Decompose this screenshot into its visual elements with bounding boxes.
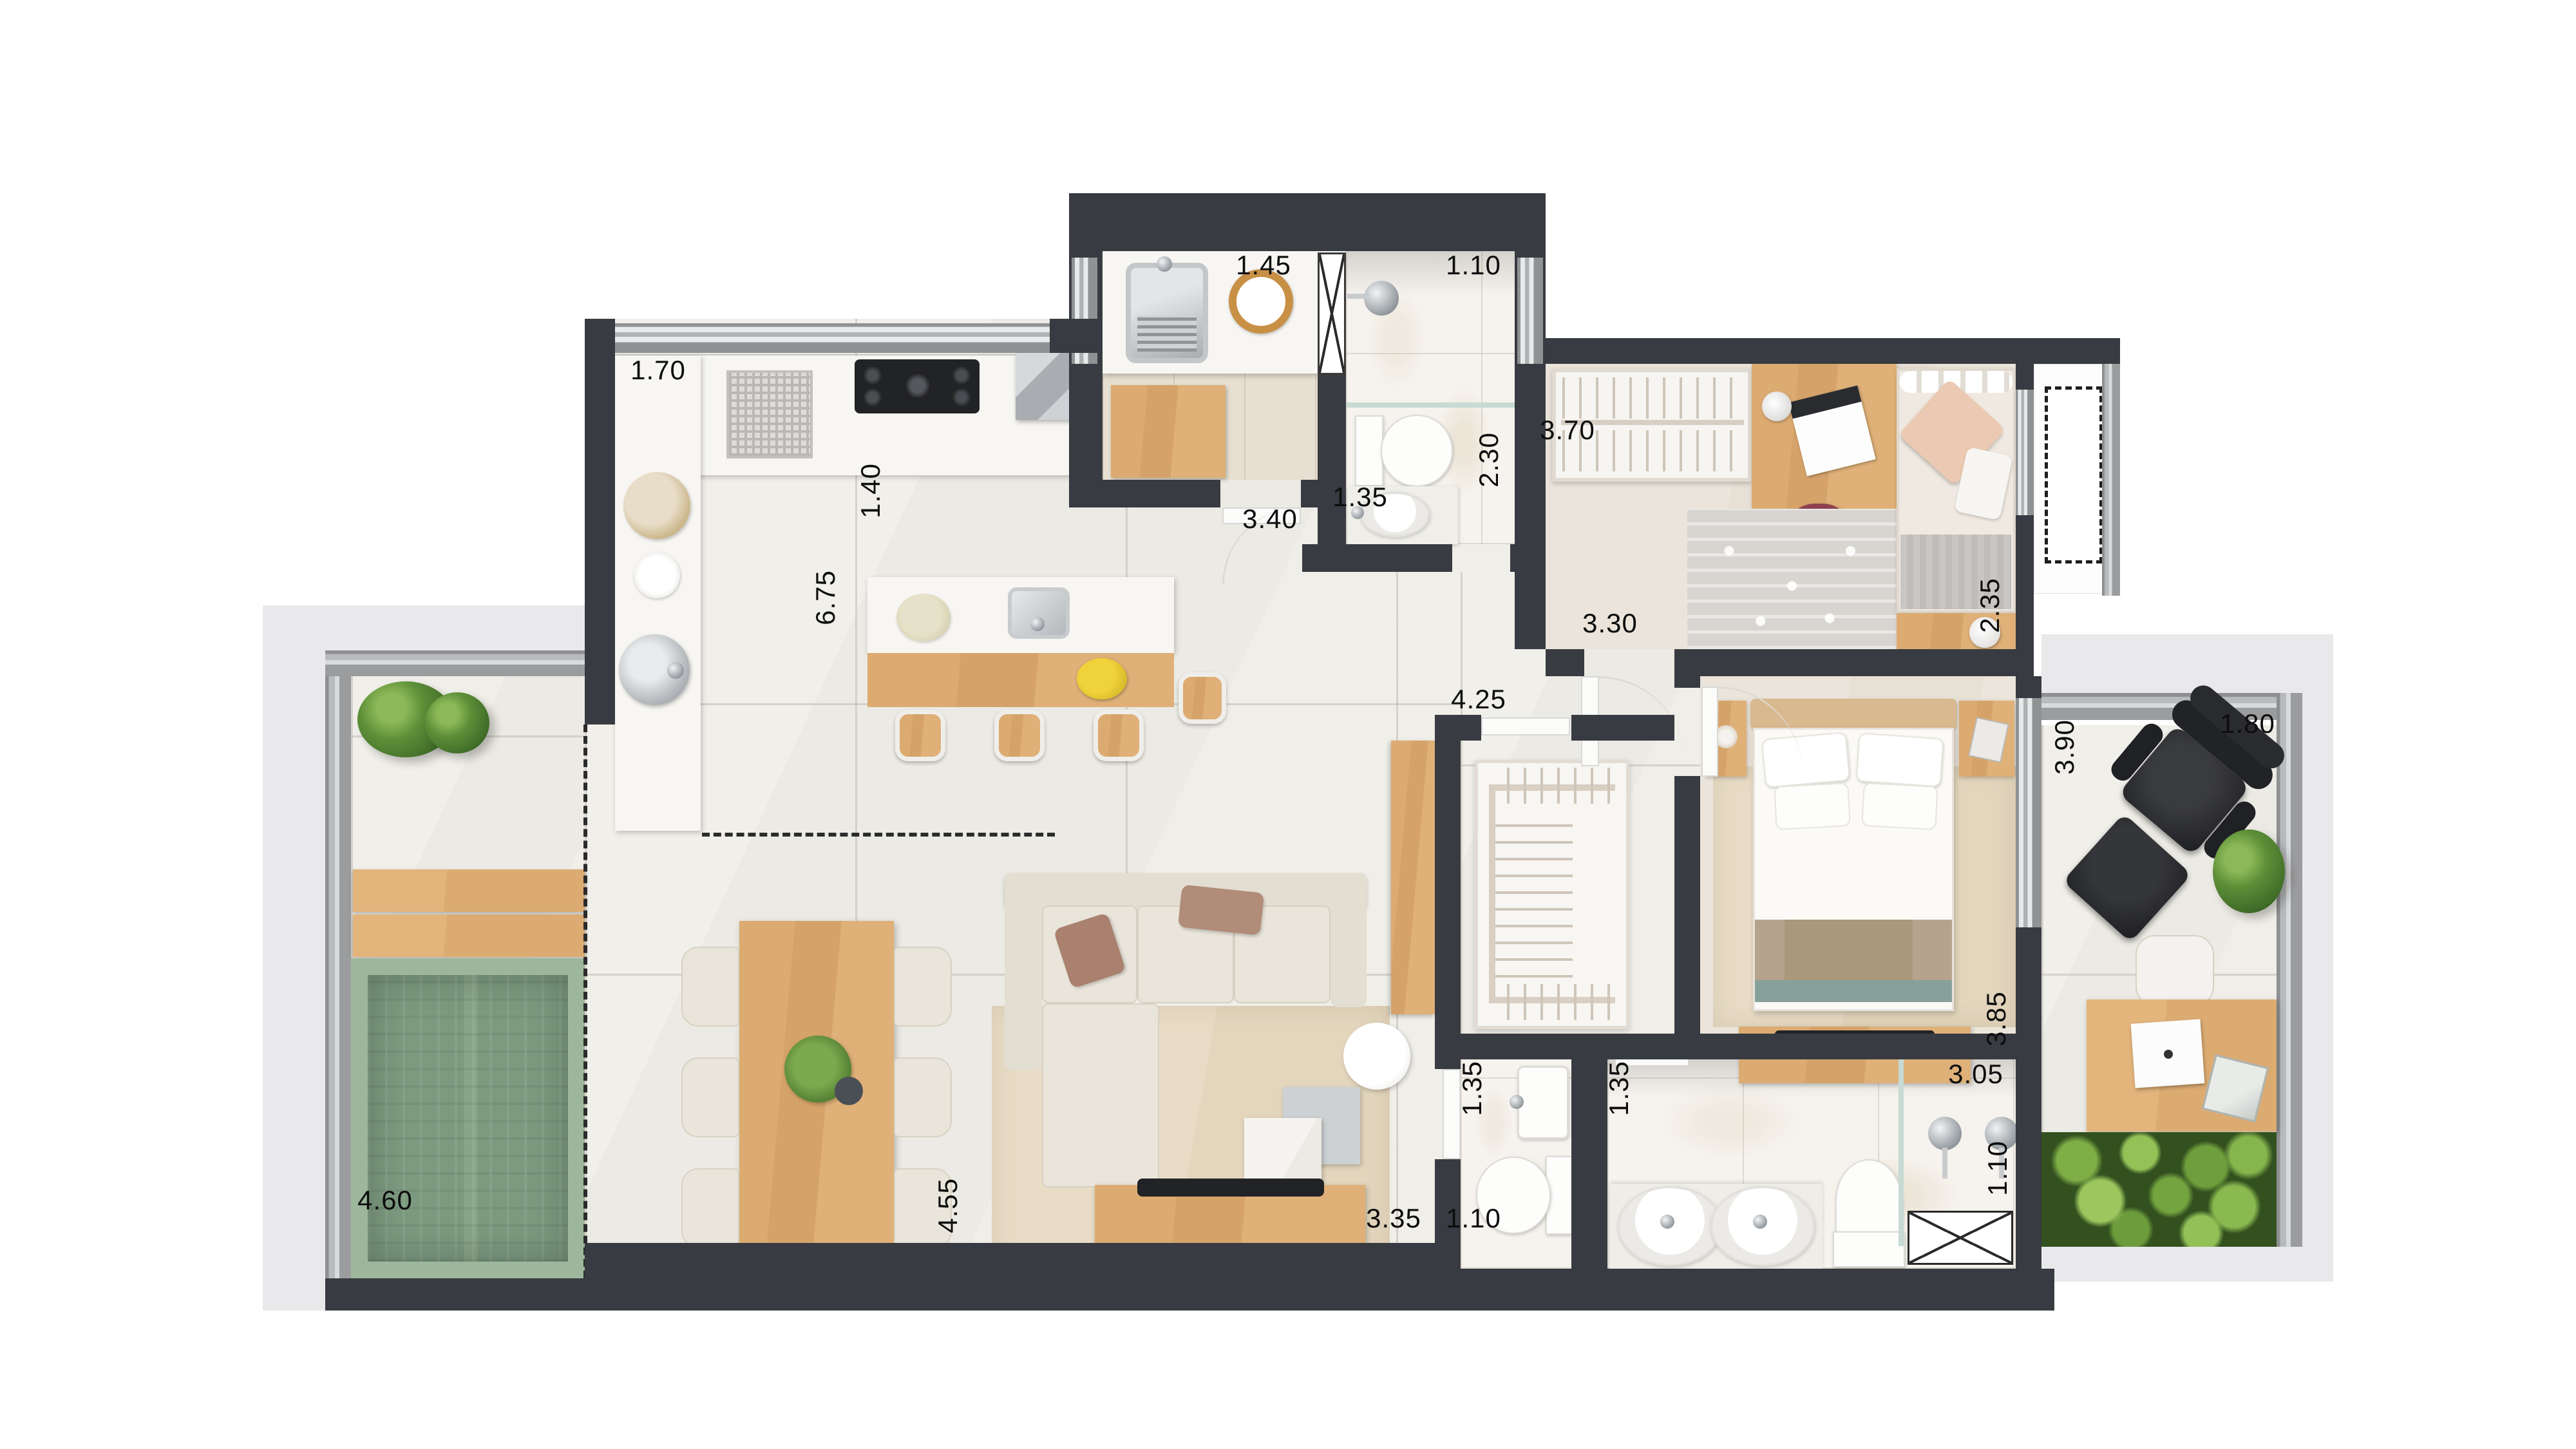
centerpiece-bowl-icon: [835, 1077, 863, 1105]
closet-hangers: [1495, 813, 1573, 978]
dimension-label: 4.25: [1451, 684, 1506, 715]
shower-arm: [1347, 294, 1369, 299]
dimension-label: 1.35: [1604, 1061, 1634, 1116]
terrace-railing-left: [325, 650, 351, 1298]
wall: [1571, 715, 1674, 741]
wall: [585, 1243, 1461, 1311]
wall: [1546, 338, 2120, 364]
wall: [585, 319, 615, 724]
wall: [1302, 544, 1452, 572]
corner-plant-icon: [425, 692, 489, 753]
toilet-bowl: [1381, 415, 1453, 487]
sofa-arm-left: [1005, 873, 1042, 1070]
dining-chair: [681, 1057, 739, 1137]
burner-icon: [863, 388, 882, 407]
dimension-label: 1.80: [2220, 708, 2275, 739]
stool: [1179, 672, 1226, 724]
terrace-sliding-door: [2016, 698, 2041, 927]
faucet-icon: [1030, 617, 1045, 631]
wall: [2016, 927, 2041, 1269]
hall-cabinet: [1391, 741, 1435, 1014]
bed-blanket-taupe: [1755, 920, 1952, 981]
dimension-label: 3.35: [1366, 1203, 1421, 1234]
window: [2016, 390, 2034, 515]
dimension-label: 1.45: [1236, 250, 1291, 281]
dining-chair: [894, 947, 952, 1027]
wall: [1435, 715, 1461, 1069]
terrace2-railing-right: [2277, 693, 2302, 1247]
desk-lamp-icon: [1762, 392, 1792, 421]
faucet-icon: [1157, 256, 1172, 272]
pool-deck-bench: [353, 914, 585, 957]
dimension-label: 1.35: [1332, 482, 1388, 513]
closet-hangers: [1507, 984, 1615, 1020]
dimension-label: 2.35: [1975, 578, 2005, 633]
shower-arm: [1942, 1148, 1947, 1179]
wall: [2016, 676, 2041, 698]
dimension-label: 3.05: [1948, 1059, 2003, 1090]
slab-left: [263, 605, 327, 1311]
terrace-planter: [2041, 1132, 2277, 1247]
master-door: [1701, 687, 1718, 777]
closet-hangers: [1562, 377, 1743, 419]
slab-right: [2302, 634, 2333, 1282]
bed-runner-teal: [1755, 980, 1952, 1002]
wall: [1674, 776, 1700, 1059]
island-sink: [1008, 587, 1070, 639]
dimension-label: 1.10: [1982, 1141, 2013, 1196]
wall: [1050, 319, 1103, 353]
side-table-round: [1343, 1023, 1410, 1090]
dimension-label: 1.10: [1446, 1203, 1501, 1234]
slab-right-bottom: [2029, 1246, 2331, 1282]
shower-glass-partition: [1346, 402, 1515, 408]
faucet-icon: [1660, 1215, 1674, 1229]
kitchen-window: [615, 323, 1053, 353]
plate-icon: [634, 552, 680, 598]
closet-c-rail-left: [1489, 784, 1495, 1003]
dimension-label: 3.40: [1242, 504, 1298, 535]
dining-chair: [681, 947, 739, 1027]
wall: [1546, 649, 1584, 676]
dimension-label: 6.75: [810, 570, 841, 625]
wall: [1571, 1059, 1607, 1269]
wall: [1690, 1034, 2029, 1059]
shower-head-icon: [1364, 281, 1399, 316]
sofa-arm-right: [1331, 873, 1367, 1007]
wall: [1318, 375, 1346, 544]
slab-left-top: [263, 605, 586, 652]
dimension-label: 1.35: [1457, 1061, 1488, 1116]
wall: [1069, 480, 1220, 507]
wall: [1069, 193, 1546, 251]
wall: [1674, 649, 2034, 676]
wall: [1674, 676, 1700, 688]
terrace-plant-icon: [2213, 829, 2285, 913]
apple-logo-dot: [2164, 1050, 2173, 1059]
stool: [1094, 710, 1144, 761]
dimension-label: 3.90: [2049, 719, 2080, 775]
ac-condenser-area: [2045, 386, 2103, 563]
terrace-railing-top: [325, 650, 585, 676]
wall: [1461, 1269, 2054, 1311]
burner-icon: [952, 388, 971, 407]
slab-right-top: [2041, 634, 2331, 694]
shower-glass-door: [1318, 252, 1346, 375]
faucet-icon: [1753, 1215, 1767, 1229]
suite2-rug: [1687, 509, 1897, 649]
toilet-tank: [1833, 1231, 1905, 1267]
sofa-pillow-brown: [1178, 884, 1264, 935]
stool: [994, 710, 1045, 761]
kitchen-projection-line: [702, 833, 1055, 837]
plunge-pool: [351, 958, 585, 1278]
lavabo-sink: [1517, 1066, 1569, 1139]
toilet-tank: [1355, 415, 1383, 486]
wall: [1301, 480, 1318, 507]
wall: [2016, 364, 2034, 390]
burner-icon: [863, 366, 882, 385]
floor-plan: 1.701.451.103.401.352.303.701.406.753.30…: [0, 0, 2576, 1449]
wall: [1461, 1034, 1700, 1059]
fruit-bowl-icon: [1077, 658, 1127, 699]
faucet-icon: [667, 662, 684, 679]
dimension-label: 3.70: [1540, 415, 1595, 446]
window: [1517, 258, 1543, 364]
pillow: [1774, 782, 1850, 830]
wall: [325, 1278, 585, 1311]
tv-living: [1137, 1179, 1324, 1197]
burner-icon: [952, 366, 971, 385]
shower-tray: [1908, 1211, 2013, 1265]
dimension-label: 3.30: [1582, 608, 1638, 639]
dining-chair: [681, 1168, 739, 1248]
dining-chair: [894, 1057, 952, 1137]
burner-icon: [904, 372, 931, 399]
stool: [895, 710, 945, 761]
serving-plates-icon: [896, 594, 951, 641]
dish-rack: [726, 370, 813, 459]
dimension-label: 1.10: [1446, 250, 1501, 281]
pillow: [1856, 732, 1944, 787]
dimension-label: 4.60: [357, 1185, 413, 1216]
shower-head-icon: [1928, 1117, 1962, 1150]
island-base: [867, 653, 1174, 707]
dimension-label: 1.40: [855, 463, 886, 518]
toilet-bowl: [1835, 1159, 1902, 1243]
laundry-shelf: [1111, 385, 1226, 478]
wall: [1461, 715, 1481, 741]
plate-set-icon: [623, 472, 690, 539]
dimension-label: 2.30: [1473, 432, 1504, 488]
balcony-railing: [2102, 364, 2120, 596]
terrace-projection-line: [583, 724, 587, 1278]
dimension-label: 4.55: [933, 1178, 963, 1233]
closet-hangers: [1507, 768, 1615, 804]
pillow: [1861, 782, 1938, 830]
closet-door: [1481, 717, 1570, 735]
sofa-chaise: [1042, 1003, 1159, 1188]
faucet-icon: [1510, 1095, 1524, 1109]
office-chair: [2136, 935, 2214, 1006]
shower-glass-partition: [1899, 1059, 1904, 1246]
dimension-label: 1.70: [630, 355, 686, 386]
dimension-label: 3.85: [1981, 991, 2012, 1046]
utility-sink-ridges: [1137, 316, 1197, 352]
pool-deck-bench: [353, 869, 585, 912]
